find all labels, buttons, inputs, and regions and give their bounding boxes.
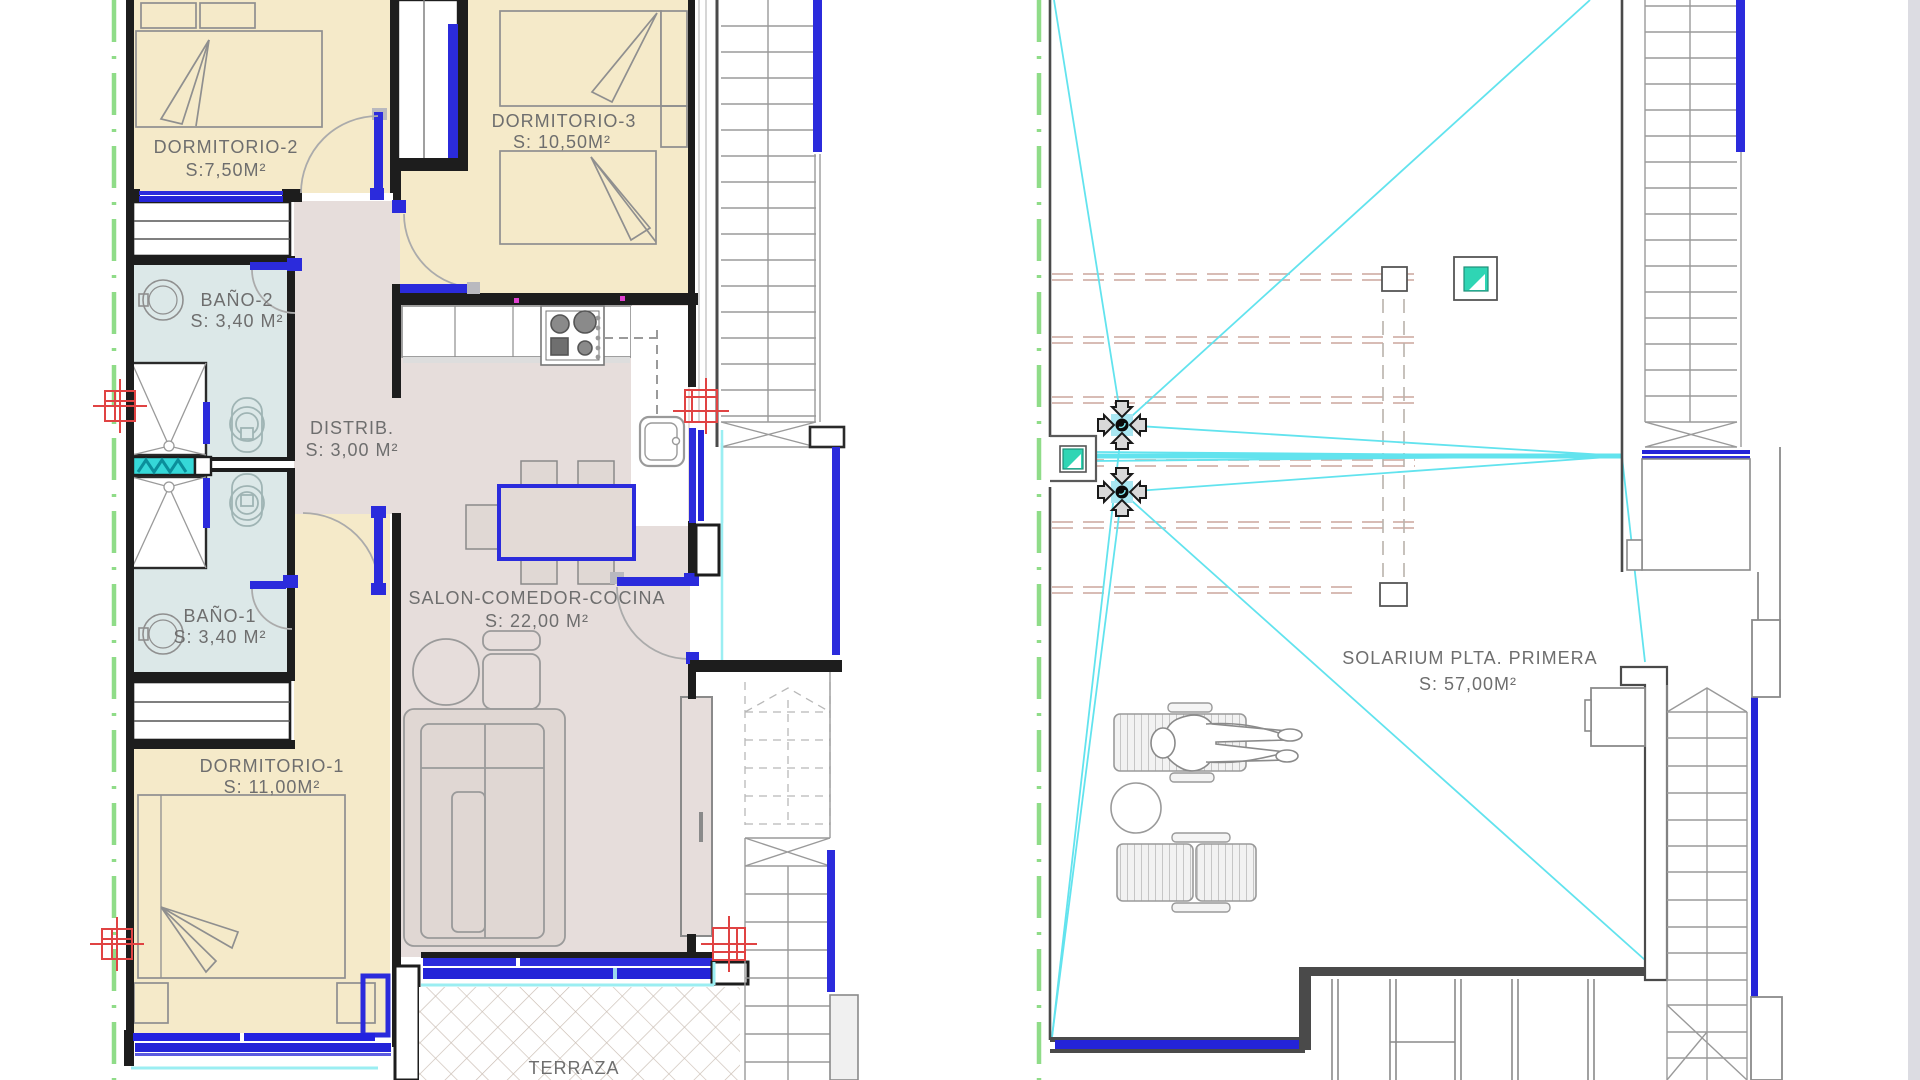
svg-text:S: 3,40 M²: S: 3,40 M² bbox=[190, 311, 283, 331]
svg-text:BAÑO-1: BAÑO-1 bbox=[183, 605, 256, 626]
svg-text:SOLARIUM PLTA. PRIMERA: SOLARIUM PLTA. PRIMERA bbox=[1342, 648, 1597, 668]
svg-text:DORMITORIO-1: DORMITORIO-1 bbox=[200, 756, 345, 776]
svg-text:SALON-COMEDOR-COCINA: SALON-COMEDOR-COCINA bbox=[408, 588, 665, 608]
svg-text:S: 11,00M²: S: 11,00M² bbox=[224, 777, 321, 797]
svg-text:S:7,50M²: S:7,50M² bbox=[185, 160, 266, 180]
svg-text:S: 22,00 M²: S: 22,00 M² bbox=[485, 611, 589, 631]
svg-text:BAÑO-2: BAÑO-2 bbox=[200, 289, 273, 310]
svg-text:DISTRIB.: DISTRIB. bbox=[310, 418, 394, 438]
svg-text:S: 10,50M²: S: 10,50M² bbox=[513, 132, 611, 152]
svg-text:DORMITORIO-3: DORMITORIO-3 bbox=[492, 111, 637, 131]
svg-text:S: 3,00 M²: S: 3,00 M² bbox=[305, 440, 398, 460]
svg-text:S: 3,40 M²: S: 3,40 M² bbox=[173, 627, 266, 647]
svg-text:S: 57,00M²: S: 57,00M² bbox=[1419, 674, 1517, 694]
svg-text:TERRAZA: TERRAZA bbox=[528, 1058, 619, 1078]
svg-text:DORMITORIO-2: DORMITORIO-2 bbox=[154, 137, 299, 157]
